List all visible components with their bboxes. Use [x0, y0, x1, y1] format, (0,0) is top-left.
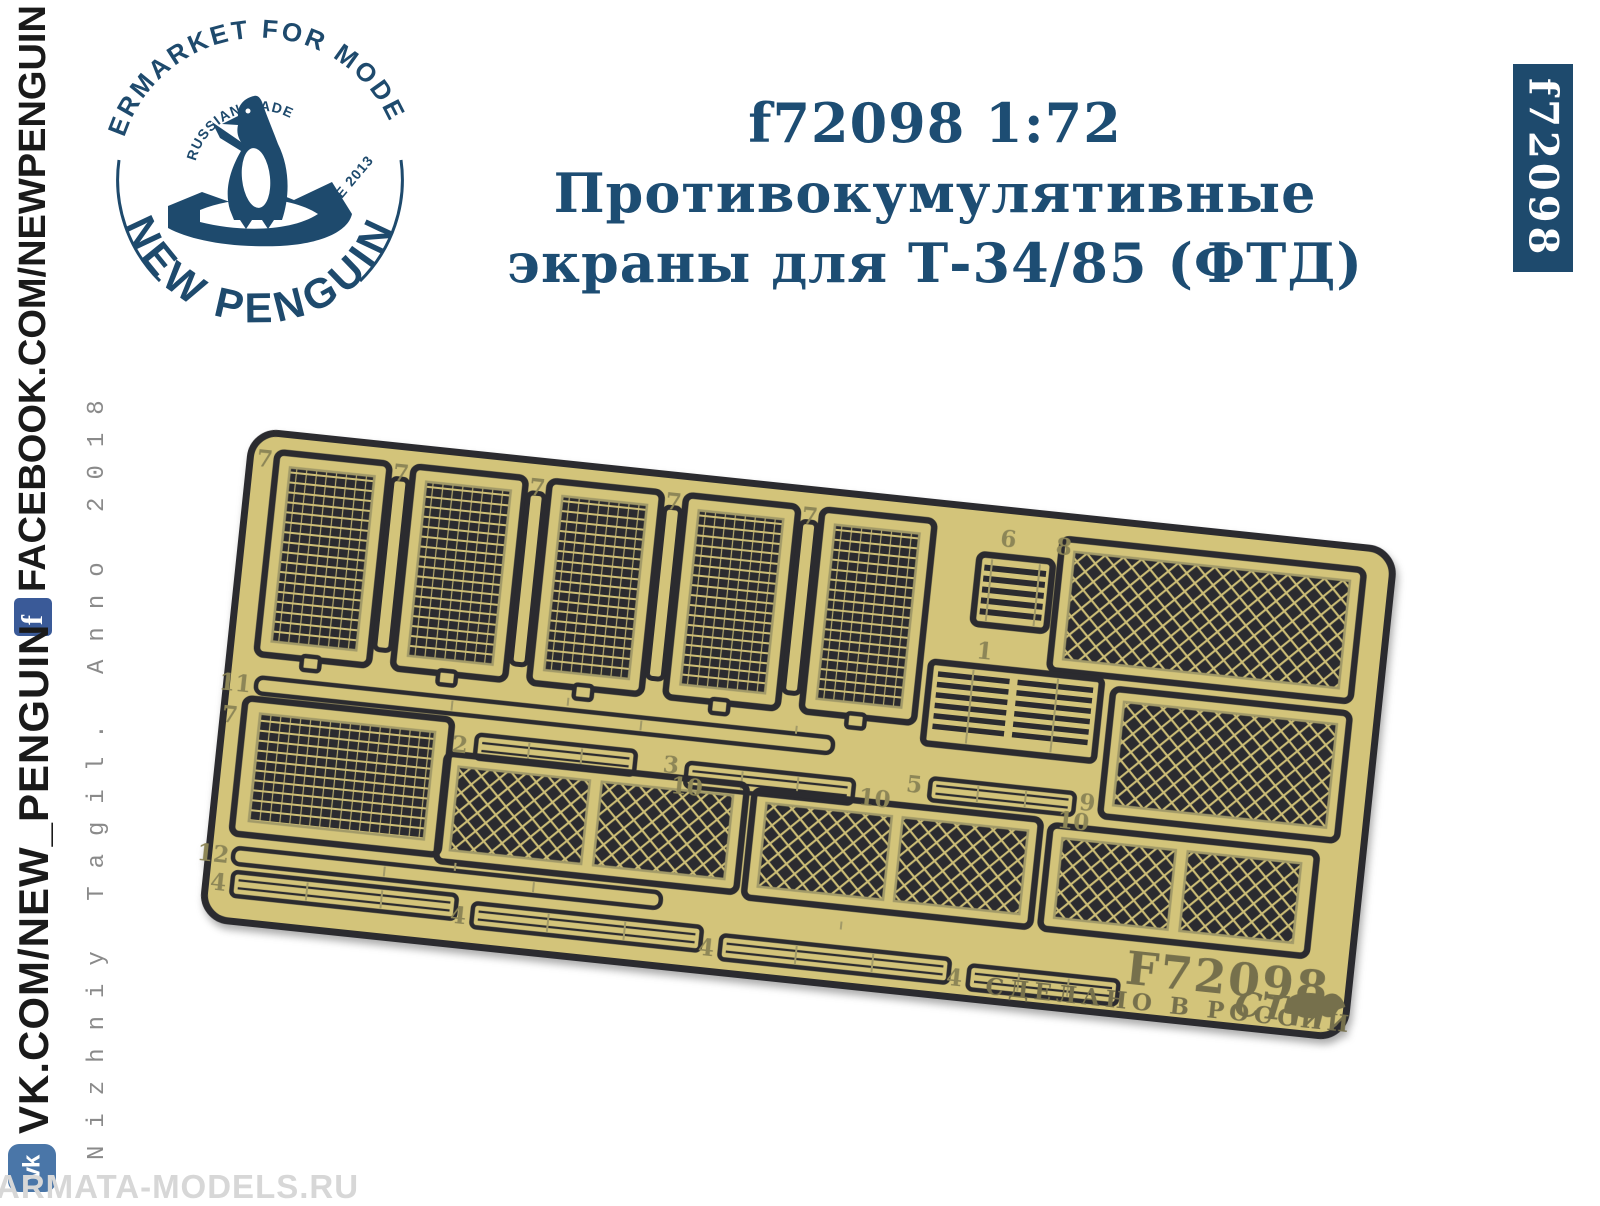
photo-etch-fret: 777776811123101059107124444 F72098 СДЕЛА… [198, 427, 1399, 1047]
city-year-note: Nizhniy Tagil. Anno 2018 [84, 382, 111, 1160]
product-title-line1: f72098 1:72 Противокумулятивные [420, 88, 1450, 228]
mesh-panel-9 [1100, 689, 1350, 841]
part-number-label: 10 [857, 784, 892, 814]
part-number-label: 7 [392, 459, 411, 488]
part-number-label: 2 [451, 731, 470, 760]
part-number-label: 11 [218, 668, 253, 698]
product-code-banner: f72098 [1513, 64, 1573, 272]
part-number-label: 10 [1056, 807, 1091, 837]
part-number-label: 4 [697, 934, 716, 963]
page: { "logo": { "arc_top": "AFTERMARKET FOR … [0, 0, 1600, 1200]
part-number-label: 7 [800, 502, 819, 531]
watermark-text: ARMATA-MODELS.RU [0, 1168, 359, 1206]
part-number-label: 7 [220, 701, 239, 730]
product-title-line2: экраны для Т-34/85 (ФТД) [420, 228, 1450, 298]
part-number-label: 12 [196, 839, 231, 869]
etch-tick [455, 863, 456, 871]
vk-url-text: VK.COM/NEW_PENGUIN [10, 624, 58, 1134]
etch-tick [796, 726, 797, 734]
product-code-vertical: f72098 [1520, 78, 1567, 258]
part-number-label: 4 [209, 868, 228, 897]
etch-tick [841, 922, 842, 930]
facebook-url-text: FACEBOOK.COM/NEWPENGUIN [12, 5, 55, 592]
part-number-label: 6 [999, 525, 1018, 554]
part-number-label: 4 [449, 902, 468, 931]
part-number-label: 8 [1055, 533, 1074, 562]
part-number-label: 4 [945, 964, 964, 993]
part-number-label: 10 [669, 772, 704, 802]
ct-monogram: СТ [1233, 984, 1292, 1030]
part-number-label: 7 [664, 488, 683, 517]
part-number-label: 1 [975, 637, 994, 666]
new-penguin-logo: AFTERMARKET FOR MODELING NEW PENGUIN RUS… [92, 12, 428, 348]
part-number-label: 7 [528, 474, 547, 503]
part-number-label: 7 [255, 445, 274, 474]
product-title: f72098 1:72 Противокумулятивные экраны д… [420, 88, 1450, 299]
part-number-label: 5 [905, 771, 924, 800]
etch-tick [568, 698, 569, 706]
